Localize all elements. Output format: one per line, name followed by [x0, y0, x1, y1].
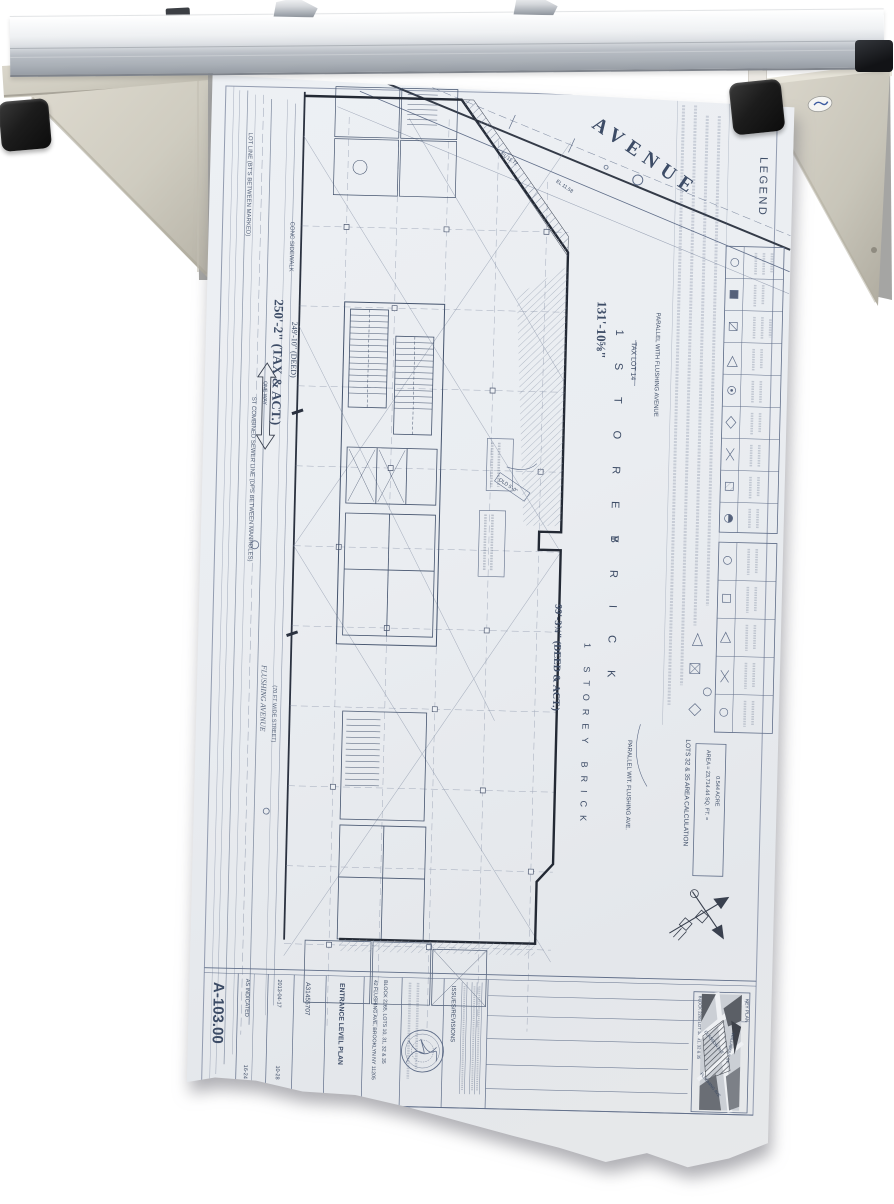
north-arrows — [669, 889, 728, 941]
wall-bracket-left — [0, 40, 220, 340]
building-outline — [284, 96, 572, 956]
legend2-text-suggest — [744, 549, 756, 727]
key-plan-block: BLOCK 2265 LOT 10, 31, 32 & 35 — [696, 996, 703, 1060]
key-plan: KEY PLAN BLOCK 2265 LOT 10, 31, 32 & 35 … — [691, 992, 750, 1113]
storey-label-2: 1 STOREY BRICK — [578, 643, 593, 829]
rail-seam — [10, 40, 884, 49]
dim-99: 99'-3¾" (DEED & ACT.) — [550, 604, 564, 711]
key-plan-street-3: WALLABOUT ST — [725, 1032, 736, 1064]
stair-treads-c — [345, 719, 381, 786]
title-block: A-103.00 AS INDICATED 16-24 2013-04-17 1… — [201, 968, 756, 1115]
scale-value: AS INDICATED — [243, 979, 250, 1017]
date-value: 2013-04-17 — [275, 979, 282, 1007]
date-value-2: 10-28 — [274, 1065, 280, 1079]
margin-notes: LOT LINE (BT'S BETWEEN MARKED) CONC SIDE… — [232, 132, 297, 742]
key-plan-street-1: CLASSON AVE — [703, 1029, 725, 1055]
el-label-1: EL 11.58 — [555, 179, 575, 195]
grid-markers — [326, 224, 549, 952]
stair-treads-a — [348, 309, 388, 408]
drop-lift-rail — [10, 8, 884, 77]
dim-131: 131'-10⅝" — [593, 301, 609, 359]
tax-lot-label: TAX LOT 14 — [629, 342, 637, 381]
construction-diagonals — [284, 116, 571, 962]
storey-label-1b: B R I C K — [604, 535, 620, 689]
area-calc-title: LOTS 32 & 35 AREA CALCULATION — [682, 739, 692, 846]
clamp-knob-right — [512, 0, 558, 16]
storey-label-1a: 1 S T O R E Y — [608, 329, 625, 554]
el-label-2: EL 11.72 — [499, 151, 519, 167]
svg-text:LOT LINE (BT'S BETWEEN MARKED): LOT LINE (BT'S BETWEEN MARKED) — [244, 132, 253, 236]
revisions-table: ISSUES/REVISIONS — [447, 982, 482, 1095]
sheet-border — [201, 86, 778, 1115]
rail-end-cap-right — [855, 40, 893, 72]
rubber-cap-right — [728, 78, 785, 135]
revisions-label: ISSUES/REVISIONS — [449, 986, 456, 1042]
area-calculation: LOTS 32 & 35 AREA CALCULATION AREA = 23,… — [681, 739, 726, 876]
plan-annotations: 250'-2" (TAX & ACT.) 249'-10" (DEED) 131… — [259, 293, 661, 831]
clamp-knob-left — [272, 0, 318, 18]
rubber-cap-left — [0, 98, 52, 152]
rail-seam-2 — [10, 49, 884, 58]
one-way-label: ONE WAY — [261, 381, 268, 406]
scale-value-2: 16-24 — [242, 1065, 248, 1079]
column-grid — [282, 116, 571, 1032]
building-core — [304, 86, 508, 1006]
area-calc-line2: 0.544 ACRE — [713, 776, 720, 807]
drawing-title: ENTRANCE LEVEL PLAN — [336, 983, 345, 1065]
stair-treads-b — [393, 336, 433, 435]
dim-250: 250'-2" (TAX & ACT.) — [269, 299, 287, 425]
legend2-symbols — [719, 556, 733, 716]
key-plan-label: KEY PLAN — [743, 999, 750, 1023]
job-number: A31455707 — [303, 982, 311, 1016]
street-zone-left: ONE WAY — [216, 90, 311, 1075]
old-dim-label: OLD 5'-0" — [497, 477, 518, 494]
svg-text:FLUSHING AVENUE: FLUSHING AVENUE — [258, 664, 269, 732]
dim-249: 249'-10" (DEED) — [289, 322, 299, 379]
sheet-number: A-103.00 — [209, 982, 228, 1044]
blueprint-drawing: ONE WAY LOT LINE (BT'S BETWEEN MARKED) C… — [184, 74, 796, 1174]
svg-text:CONC SIDEWALK: CONC SIDEWALK — [287, 222, 294, 272]
titleblock-rules — [486, 996, 748, 1095]
parallel-note-1: PARALLEL WITH FLUSHING AVENUE — [652, 312, 661, 416]
architect-seal — [401, 983, 445, 1080]
key-plan-street-2: FLUSHING AVE — [699, 1071, 722, 1098]
project-address-1: 42 FLUSHING AVE, BROOKLYN NY 11205 — [370, 980, 378, 1080]
svg-text:ST COMBINED SEWER LINE (DPS BE: ST COMBINED SEWER LINE (DPS BETWEEN MANH… — [246, 397, 256, 562]
blueprint-sheet: ONE WAY LOT LINE (BT'S BETWEEN MARKED) C… — [184, 74, 796, 1174]
svg-text:(70 FT WIDE STREET): (70 FT WIDE STREET) — [270, 685, 277, 742]
avenue-label: AVENUE — [588, 113, 703, 201]
area-calc-line1: AREA = 23,714.44 SQ. FT. = — [703, 750, 711, 820]
product-photo: ONE WAY LOT LINE (BT'S BETWEEN MARKED) C… — [0, 0, 894, 1204]
notes-column — [662, 99, 729, 732]
stair-treads-d — [407, 94, 438, 125]
one-way-arrow — [256, 363, 276, 449]
parallel-note-2: PARALLEL WIT. FLUSHING AVE. — [624, 740, 632, 830]
project-address-2: BLOCK 2265, LOTS 10, 31, 32 & 35 — [380, 980, 388, 1064]
